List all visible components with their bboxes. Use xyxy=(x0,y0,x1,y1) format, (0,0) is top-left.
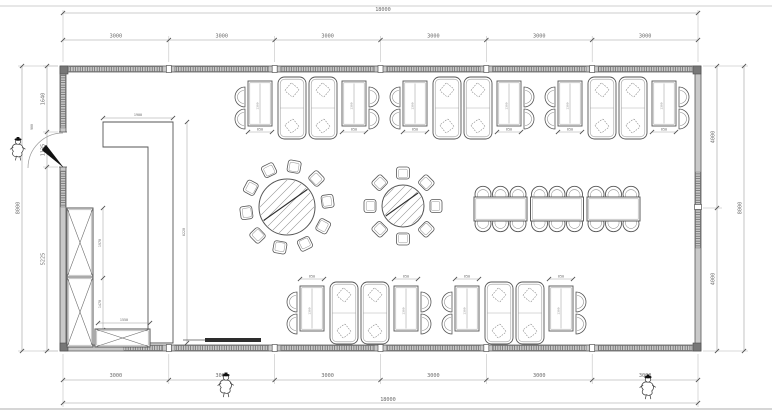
booth-group: 13006501300650 xyxy=(442,275,586,345)
round-table-chair xyxy=(321,194,335,209)
dim-right-total: 8000 xyxy=(738,202,744,215)
dim-counter-seg: 1970 xyxy=(98,239,102,247)
round-table-chair xyxy=(417,174,435,192)
dim-counter-seg: 1470 xyxy=(98,300,102,308)
banquet-table xyxy=(531,197,584,221)
dining-chair xyxy=(390,87,400,107)
dim-table-width: 650 xyxy=(558,275,564,279)
dim-left-seg: 5225 xyxy=(41,253,47,266)
dim-left-seg: 1640 xyxy=(41,93,47,106)
person-hat-top xyxy=(17,137,20,139)
dining-chair xyxy=(679,109,689,129)
dim-counter-len-label: 6220 xyxy=(182,228,186,236)
cabinet xyxy=(67,277,93,347)
dim-table-depth: 1300 xyxy=(566,102,570,109)
person-figure xyxy=(10,137,25,160)
dim-table-width: 650 xyxy=(257,128,263,132)
dining-chair xyxy=(524,109,534,129)
dim-bottom-seg: 3000 xyxy=(110,373,123,379)
dining-chair xyxy=(524,87,534,107)
dim-counter-base-label: 1550 xyxy=(120,318,128,322)
dim-table-width: 650 xyxy=(506,128,512,132)
dim-table-width: 650 xyxy=(567,128,573,132)
dim-table-depth: 1300 xyxy=(463,307,467,314)
window-top xyxy=(69,67,163,72)
booth-group: 13006501300650 xyxy=(287,275,431,345)
wall-mullion xyxy=(166,66,171,73)
dim-bottom-total: 18000 xyxy=(380,397,396,403)
dining-chair xyxy=(390,109,400,129)
chair-seat xyxy=(297,236,314,252)
dining-chair xyxy=(576,314,586,334)
dim-right-seg: 4000 xyxy=(711,131,717,144)
chair-seat xyxy=(315,218,332,235)
dim-door-width: 900 xyxy=(30,124,34,130)
person-body xyxy=(642,382,654,395)
booth-group: 13006501300650 xyxy=(235,77,379,139)
round-table-chair xyxy=(261,162,278,178)
round-table-chair xyxy=(308,170,326,188)
round-table-chair xyxy=(315,218,332,235)
dining-chair xyxy=(442,292,452,312)
window-left xyxy=(61,75,66,128)
booth-group: 13006501300650 xyxy=(545,77,689,139)
dim-bottom-seg: 3000 xyxy=(321,373,334,379)
door-opening xyxy=(59,132,68,167)
wall-mullion xyxy=(484,66,489,73)
wall-mullion xyxy=(378,66,383,73)
round-table-chair xyxy=(371,174,389,192)
dim-table-width: 650 xyxy=(412,128,418,132)
banquet-row xyxy=(474,186,640,231)
dim-table-width: 650 xyxy=(661,128,667,132)
dim-right-seg: 4000 xyxy=(711,273,717,286)
window-top xyxy=(598,67,692,72)
chair-seat xyxy=(242,179,259,196)
round-table-chair xyxy=(371,220,389,238)
dining-chair xyxy=(287,314,297,334)
round-table-chair xyxy=(417,220,435,238)
cabinet xyxy=(95,329,150,347)
window-right xyxy=(696,172,701,248)
round-table-chair xyxy=(397,167,410,179)
window-bottom xyxy=(175,346,269,351)
wall-mullion xyxy=(590,66,595,73)
dim-bottom-seg: 3000 xyxy=(533,373,546,379)
wall-mullion xyxy=(590,345,595,352)
person-hat-top xyxy=(647,375,650,378)
dim-top-seg: 3000 xyxy=(639,34,652,40)
window-top xyxy=(492,67,586,72)
dim-table-depth: 1300 xyxy=(411,102,415,109)
dim-table-width: 650 xyxy=(351,128,357,132)
booth-group: 13006501300650 xyxy=(390,77,534,139)
dim-counter-top-label: 1900 xyxy=(134,113,142,117)
window-top xyxy=(175,67,269,72)
round-table-chair xyxy=(364,200,376,213)
counter-outline xyxy=(103,122,173,343)
dining-chair xyxy=(369,109,379,129)
window-top xyxy=(387,67,481,72)
dim-table-depth: 1300 xyxy=(350,102,354,109)
round-table-chair xyxy=(297,236,314,252)
dim-top-seg: 3000 xyxy=(321,34,334,40)
dim-table-depth: 1300 xyxy=(256,102,260,109)
corner-post xyxy=(60,66,68,74)
dining-chair xyxy=(235,87,245,107)
dim-table-depth: 1300 xyxy=(308,307,312,314)
wall-mullion xyxy=(695,205,702,210)
round-table-chair xyxy=(272,240,287,254)
wall-mullion xyxy=(484,345,489,352)
cabinet xyxy=(67,208,93,277)
dining-chair xyxy=(235,109,245,129)
round-table-chair xyxy=(240,205,254,220)
dining-chair xyxy=(421,292,431,312)
dim-table-width: 650 xyxy=(309,275,315,279)
dim-table-width: 650 xyxy=(464,275,470,279)
person-hat-top xyxy=(225,373,228,376)
dining-chair xyxy=(442,314,452,334)
dining-chair xyxy=(287,292,297,312)
window-bottom xyxy=(492,346,586,351)
round-table-group xyxy=(226,160,348,255)
round-table-chair xyxy=(249,227,267,245)
dining-chair xyxy=(421,314,431,334)
window-top xyxy=(281,67,375,72)
entry-door xyxy=(28,132,68,168)
dim-top-seg: 3000 xyxy=(216,34,229,40)
dim-top-seg: 3000 xyxy=(427,34,440,40)
round-table-chair xyxy=(397,233,410,245)
dim-top-seg: 3000 xyxy=(533,34,546,40)
wall-mullion xyxy=(166,345,171,352)
banquet-table xyxy=(587,197,640,221)
dim-table-width: 650 xyxy=(403,275,409,279)
dim-table-depth: 1300 xyxy=(402,307,406,314)
round-table-group xyxy=(349,167,457,245)
wall-mullion xyxy=(378,345,383,352)
dining-chair xyxy=(576,292,586,312)
window-bottom xyxy=(598,346,692,351)
dim-table-depth: 1300 xyxy=(557,307,561,314)
corner-post xyxy=(693,343,701,351)
wall-mullion xyxy=(272,345,277,352)
round-table-chair xyxy=(242,179,259,196)
dim-top-total: 18000 xyxy=(375,7,391,13)
person-body xyxy=(12,144,23,157)
wall-mullion xyxy=(272,66,277,73)
person-body xyxy=(220,380,232,393)
restaurant-floor-plan: 1800030003000300030003000300030003000300… xyxy=(0,0,772,414)
window-bottom xyxy=(281,346,375,351)
dim-table-depth: 1300 xyxy=(505,102,509,109)
window-bottom xyxy=(387,346,481,351)
corner-post xyxy=(693,66,701,74)
drawing-sheet: 1800030003000300030003000300030003000300… xyxy=(0,0,772,414)
window-left xyxy=(61,171,66,207)
dim-table-depth: 1300 xyxy=(660,102,664,109)
round-table-chair xyxy=(287,160,302,174)
dining-chair xyxy=(545,109,555,129)
banquet-table xyxy=(474,197,527,221)
dim-left-total: 8000 xyxy=(16,202,22,215)
dim-top-seg: 3000 xyxy=(110,34,123,40)
dining-chair xyxy=(545,87,555,107)
dining-chair xyxy=(679,87,689,107)
chair-seat xyxy=(261,162,278,178)
dim-bottom-seg: 3000 xyxy=(427,373,440,379)
dining-chair xyxy=(369,87,379,107)
service-counter: 19006220197014701550 xyxy=(96,113,189,345)
round-table-chair xyxy=(430,200,442,213)
bottom-door-leaf xyxy=(205,338,261,342)
